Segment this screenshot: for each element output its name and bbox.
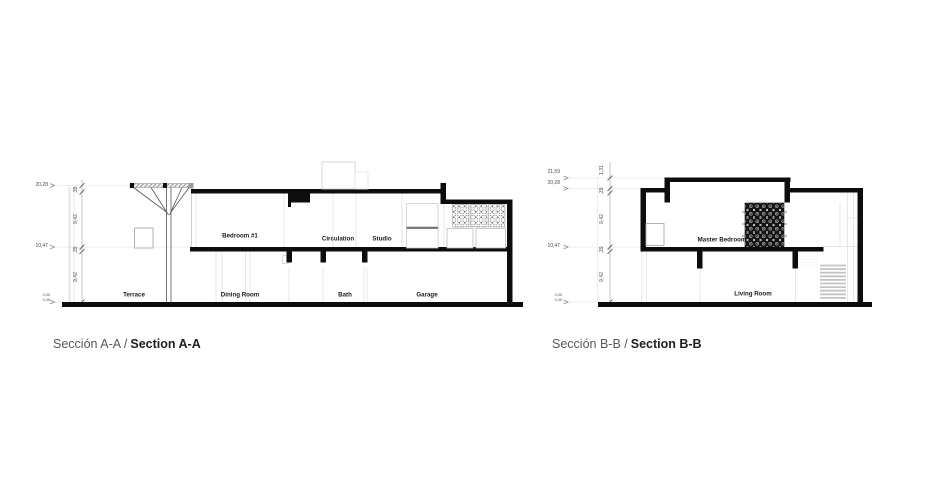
level-label-b-upper: 10,47 bbox=[547, 243, 560, 249]
caption-section-b-english: Section B-B bbox=[631, 337, 702, 351]
sections-linework bbox=[0, 0, 938, 500]
ground-wall-stubs-b bbox=[697, 252, 798, 269]
section-a-light-lines bbox=[70, 187, 444, 302]
dim-label-b-roof-slab: ,39 bbox=[599, 188, 605, 195]
right-wall-b bbox=[858, 188, 864, 307]
caption-section-b-spanish: Sección B-B / bbox=[552, 337, 628, 351]
stair-hatch-area bbox=[799, 252, 820, 269]
level-label-b-ground-2: 0,00 bbox=[555, 298, 562, 302]
dim-label-a-floor-slab: ,39 bbox=[73, 246, 79, 253]
room-label-terrace: Terrace bbox=[123, 291, 145, 298]
section-b-drawing bbox=[562, 162, 872, 307]
room-label-circulation: Circulation bbox=[322, 236, 354, 243]
terrace-canopy bbox=[130, 183, 194, 189]
stair-bulkhead bbox=[322, 162, 368, 189]
section-a-level-arrows bbox=[50, 184, 55, 305]
level-label-b-top: 20,28 bbox=[547, 180, 560, 186]
dim-label-b-ground-story: 9,42 bbox=[599, 272, 605, 282]
garage-windows bbox=[447, 229, 506, 249]
raised-roof-slab-b bbox=[665, 178, 791, 183]
room-label-bedroom1: Bedroom #1 bbox=[222, 232, 258, 239]
bedroom-ceiling-beam bbox=[288, 194, 310, 208]
dim-label-b-upper-story: 9,42 bbox=[599, 214, 605, 224]
staircase bbox=[820, 266, 846, 298]
architectural-sections-sheet: Terrace Bedroom #1 Dining Room Circulati… bbox=[0, 0, 938, 500]
room-label-living-room: Living Room bbox=[734, 290, 771, 297]
roof-slab-a-main bbox=[191, 189, 445, 194]
dim-label-b-parapet: 1,31 bbox=[599, 165, 605, 175]
ground-slab-a bbox=[62, 302, 523, 307]
room-label-dining: Dining Room bbox=[221, 291, 259, 298]
ground-wall-stubs-a bbox=[287, 252, 368, 263]
roof-slab-b-right bbox=[788, 188, 863, 193]
caption-section-b: Sección B-B /Section B-B bbox=[552, 337, 702, 351]
dim-label-a-ground-story: 9,42 bbox=[73, 272, 79, 282]
right-wall-a bbox=[507, 200, 513, 308]
roof-slab-a-garage bbox=[445, 200, 512, 205]
ground-slab-b bbox=[598, 302, 872, 307]
garage-breeze-blocks bbox=[453, 205, 506, 228]
dim-label-a-upper-story: 9,42 bbox=[73, 214, 79, 224]
room-label-garage: Garage bbox=[416, 291, 437, 298]
caption-section-a-english: Section A-A bbox=[130, 337, 200, 351]
left-wall-b bbox=[641, 188, 647, 251]
room-label-master-bedroom: Master Bedroom bbox=[698, 237, 747, 244]
section-a-drawing bbox=[50, 162, 523, 307]
level-label-a-ground-2: 0,00 bbox=[43, 298, 50, 302]
level-label-b-parapet: 21,59 bbox=[547, 169, 560, 175]
studio-casework bbox=[407, 204, 439, 249]
terrace-wall-opening bbox=[135, 228, 154, 248]
room-label-bath: Bath bbox=[338, 291, 352, 298]
dim-label-a-roof-slab: ,39 bbox=[73, 187, 79, 194]
master-bedroom-screen bbox=[742, 203, 787, 248]
floor-slab-b bbox=[641, 247, 824, 252]
section-b-level-arrows bbox=[564, 176, 569, 304]
level-label-a-ground-1: 0,00 bbox=[43, 293, 50, 297]
caption-section-a-spanish: Sección A-A / bbox=[53, 337, 127, 351]
caption-section-a: Sección A-A /Section A-A bbox=[53, 337, 201, 351]
level-label-b-ground-1: 0,00 bbox=[555, 293, 562, 297]
dim-label-b-floor-slab: ,39 bbox=[599, 246, 605, 253]
master-bedroom-wall-opening bbox=[646, 224, 664, 246]
room-label-studio: Studio bbox=[372, 236, 391, 243]
level-label-a-upper: 10,47 bbox=[35, 243, 48, 249]
level-label-a-top: 20,28 bbox=[35, 182, 48, 188]
